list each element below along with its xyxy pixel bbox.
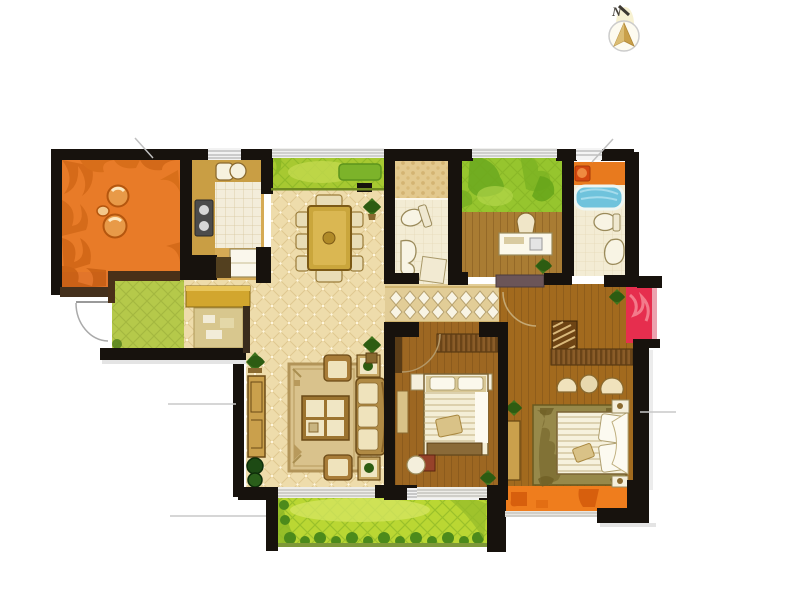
svg-text:N: N xyxy=(611,4,622,19)
